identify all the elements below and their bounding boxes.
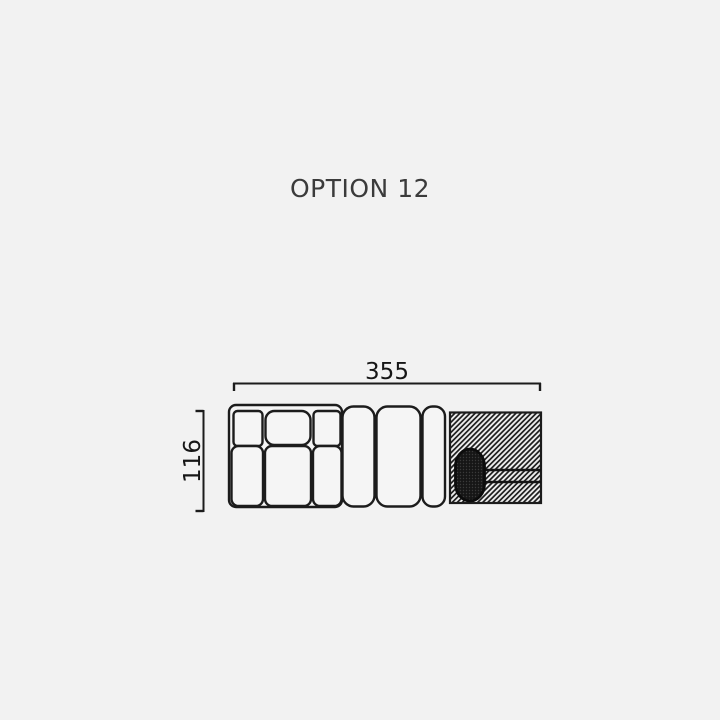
seat-cushion xyxy=(265,446,311,506)
sofa-diagram: 355 116 xyxy=(0,0,720,720)
bench-cushion xyxy=(423,407,446,507)
width-dimension-label: 355 xyxy=(365,359,409,385)
bench-cushion xyxy=(343,407,375,507)
seat-cushion xyxy=(232,446,264,506)
sofa-left-section xyxy=(229,405,342,507)
back-cushion xyxy=(234,411,263,446)
side-platform xyxy=(450,413,541,504)
back-cushion xyxy=(314,411,341,446)
height-dimension-label: 116 xyxy=(180,439,206,483)
platform-oval xyxy=(456,449,485,501)
bench-cushion xyxy=(377,407,421,507)
width-dimension: 355 xyxy=(233,359,541,391)
canvas: OPTION 12 355 116 xyxy=(0,0,720,720)
height-dimension: 116 xyxy=(180,410,206,512)
bench-cushions xyxy=(343,407,446,507)
seat-cushion xyxy=(313,446,342,506)
back-cushion xyxy=(266,411,311,445)
